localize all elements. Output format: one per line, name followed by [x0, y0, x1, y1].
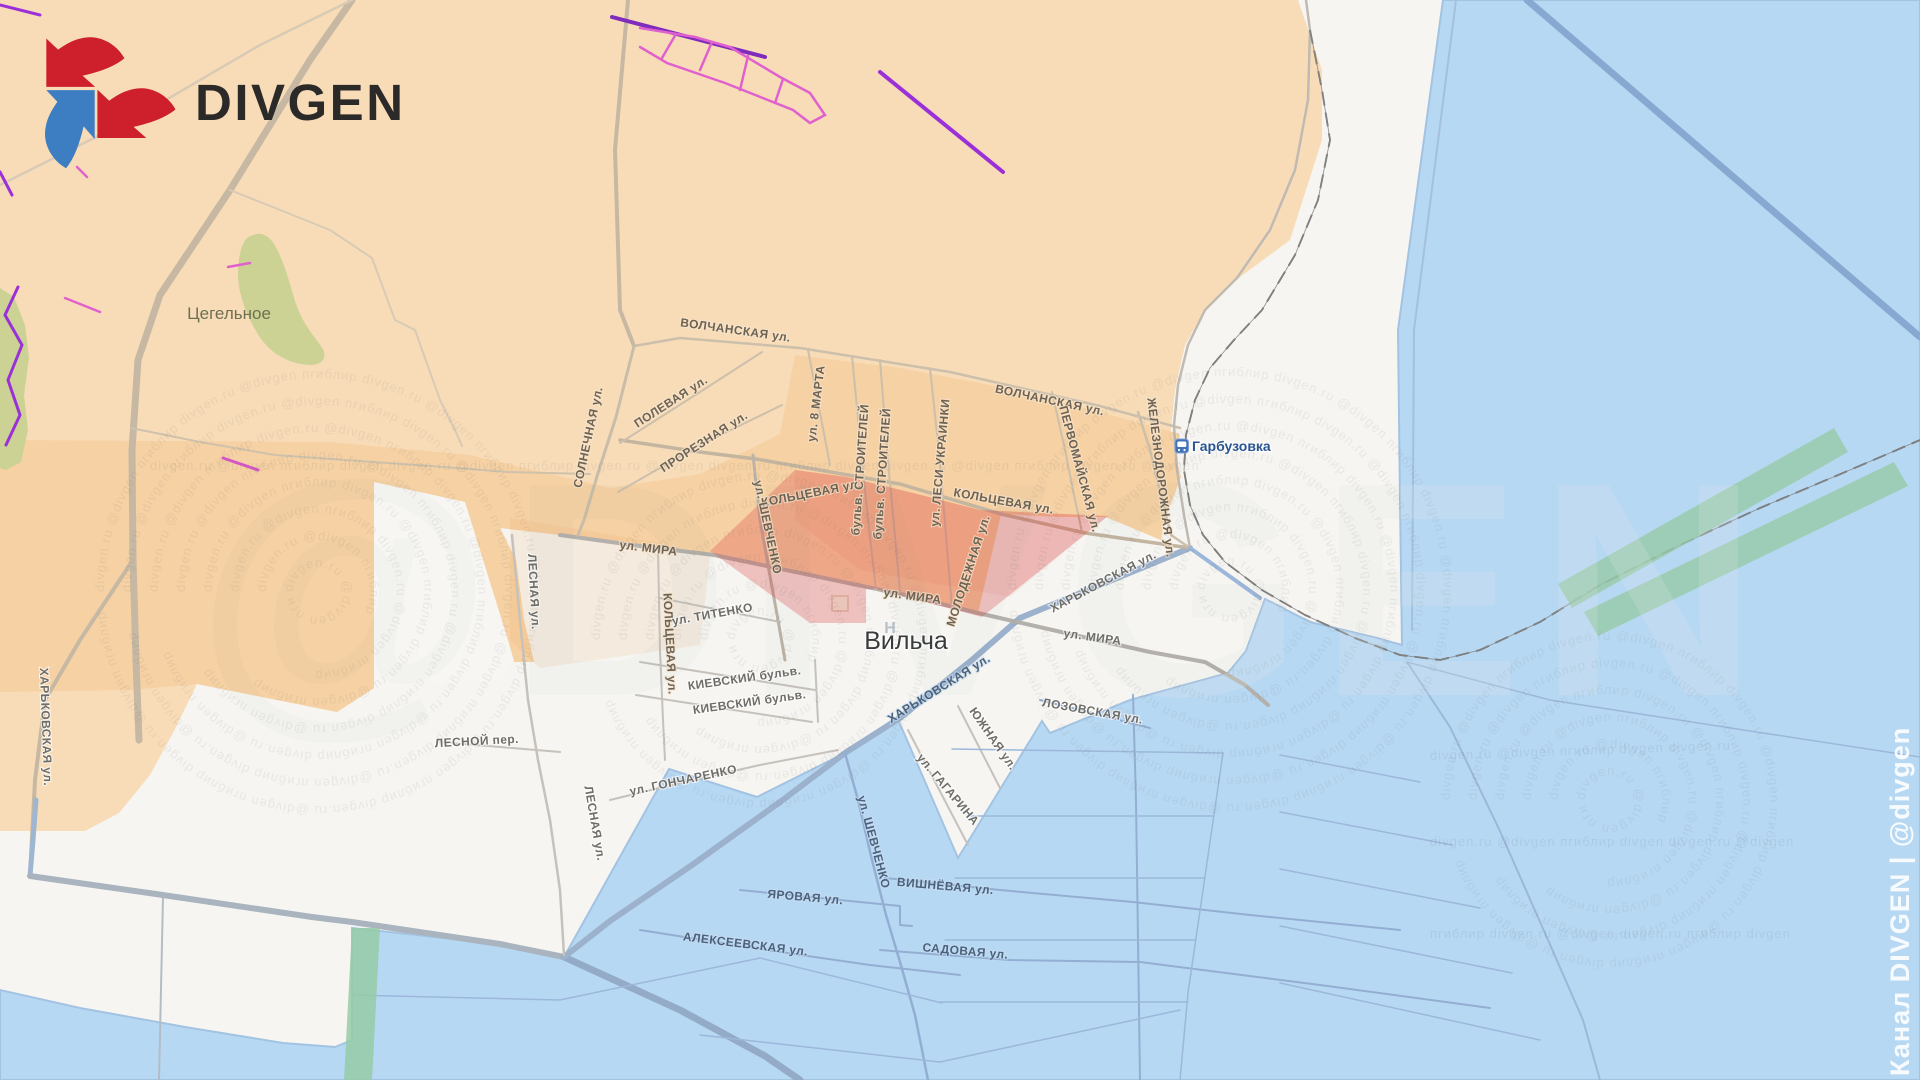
svg-text:DIVGEN: DIVGEN — [195, 74, 406, 131]
svg-text:Цегельное: Цегельное — [187, 304, 271, 323]
svg-text:Канал DIVGEN | @divgen: Канал DIVGEN | @divgen — [1885, 727, 1915, 1076]
